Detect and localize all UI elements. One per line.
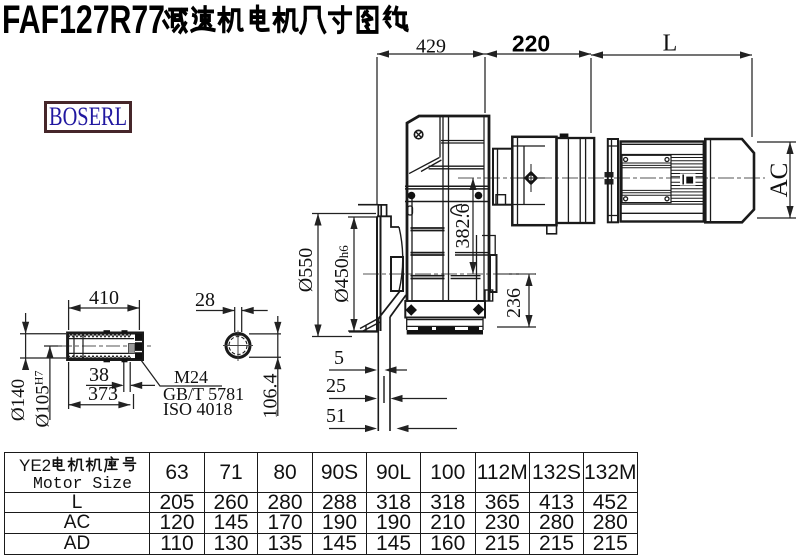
svg-text:ISO 4018: ISO 4018	[163, 399, 233, 419]
svg-text:L: L	[663, 31, 678, 57]
svg-text:Motor Size: Motor Size	[33, 474, 132, 491]
svg-text:Ø550: Ø550	[295, 248, 317, 292]
svg-text:220: 220	[512, 31, 550, 57]
svg-text:YE2: YE2	[19, 456, 51, 475]
svg-text:382.6: 382.6	[452, 204, 474, 249]
svg-text:Ø140: Ø140	[8, 379, 29, 421]
svg-text:FAF127R77: FAF127R77	[2, 0, 165, 42]
svg-text:5: 5	[334, 347, 344, 369]
svg-text:28: 28	[195, 289, 215, 311]
svg-text:BOSERL: BOSERL	[49, 104, 127, 130]
svg-text:25: 25	[326, 375, 346, 397]
svg-text:106.4: 106.4	[260, 374, 282, 419]
svg-text:429: 429	[416, 36, 446, 58]
svg-text:Ø450h6: Ø450h6	[331, 245, 353, 303]
svg-text:236: 236	[503, 288, 525, 318]
svg-text:373: 373	[88, 383, 118, 405]
svg-text:51: 51	[326, 405, 346, 427]
svg-text:AC: AC	[766, 163, 793, 198]
svg-text:410: 410	[89, 287, 119, 309]
